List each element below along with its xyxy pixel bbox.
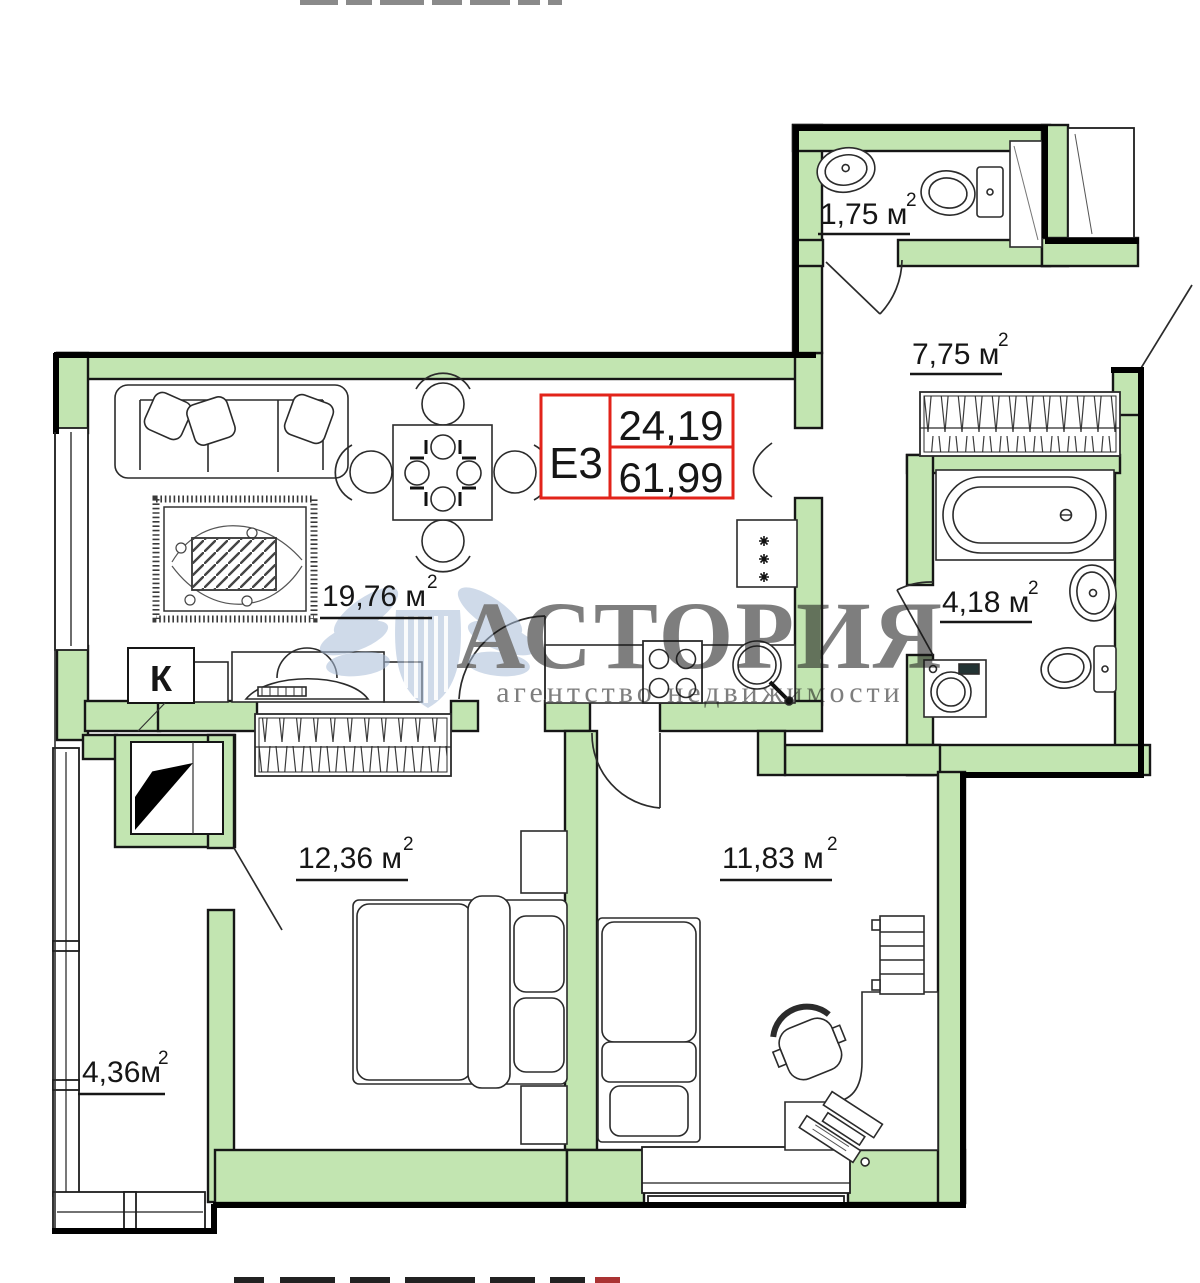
- bath-sink: [1066, 562, 1119, 624]
- watermark-subtitle: агентство недвижимости: [496, 676, 903, 709]
- entrance-door: [1138, 285, 1192, 373]
- balcony-left-window: [53, 748, 79, 1196]
- hallway-area-label: 7,75 м 2: [910, 330, 1009, 374]
- unit-room-area: 24,19: [618, 402, 723, 449]
- svg-text:11,83 м: 11,83 м: [722, 842, 824, 875]
- rug: [156, 499, 314, 619]
- shelf: [872, 916, 924, 994]
- single-bed: [598, 918, 700, 1142]
- cropped-text-artifact-top: [300, 0, 562, 5]
- wc-door: [826, 260, 902, 314]
- balcony-bottom-window: [53, 1192, 205, 1230]
- unit-total-area: 61,99: [618, 454, 723, 501]
- svg-text:2: 2: [998, 330, 1009, 351]
- unit-code: Е3: [549, 439, 603, 488]
- floor-plan: АСТОРИЯ агентство недвижимости 1,75 м 2 …: [0, 0, 1200, 1283]
- bathtub: [936, 470, 1114, 560]
- bedroom2-area-label: 11,83 м 2: [720, 834, 838, 880]
- balcony-door: [234, 848, 282, 930]
- unit-badge: Е3 24,19 61,99: [541, 395, 733, 501]
- bathroom-area-label: 4,18 м 2: [940, 578, 1039, 622]
- coffee-table: [192, 538, 276, 590]
- floor-plan-page: АСТОРИЯ агентство недвижимости 1,75 м 2 …: [0, 0, 1200, 1283]
- cropped-text-artifact-bottom: [234, 1277, 620, 1283]
- svg-text:2: 2: [158, 1048, 169, 1069]
- wc-area-label: 1,75 м 2: [818, 190, 917, 234]
- svg-text:2: 2: [403, 834, 414, 855]
- wc-toilet: [918, 167, 1003, 219]
- dining-set: [335, 373, 550, 572]
- balcony-area-label: 4,36м 2: [78, 1048, 169, 1094]
- svg-text:7,75 м: 7,75 м: [912, 338, 999, 371]
- svg-text:2: 2: [1028, 578, 1039, 599]
- wc-niche: [1068, 128, 1134, 238]
- watermark-title: АСТОРИЯ: [456, 582, 944, 689]
- shaft-label: К: [150, 658, 173, 699]
- nightstand: [521, 1086, 567, 1144]
- svg-text:2: 2: [427, 572, 438, 593]
- tv-stand: [188, 648, 422, 702]
- office-chair: [761, 996, 854, 1088]
- living-area-label: 19,76 м 2: [320, 572, 438, 618]
- wc-door-panel: [1010, 141, 1042, 247]
- living-hall-opening: [754, 443, 773, 497]
- svg-text:2: 2: [827, 834, 838, 855]
- sofa: [115, 385, 348, 478]
- bedroom1-wardrobe: [255, 714, 451, 776]
- svg-text:4,18 м: 4,18 м: [942, 586, 1029, 619]
- nightstand: [521, 831, 567, 893]
- svg-text:2: 2: [906, 190, 917, 211]
- bedroom2-door: [592, 733, 660, 808]
- svg-text:4,36м: 4,36м: [82, 1056, 161, 1089]
- svg-text:1,75 м: 1,75 м: [820, 198, 907, 231]
- bedroom1-area-label: 12,36 м 2: [296, 834, 414, 880]
- hallway-wardrobe: [920, 392, 1120, 456]
- double-bed: [353, 896, 567, 1088]
- bath-toilet: [1038, 644, 1116, 692]
- fridge: [737, 520, 797, 587]
- living-window: [55, 428, 88, 650]
- bedroom2-window: [642, 1147, 850, 1205]
- vent-shaft: [131, 742, 223, 834]
- svg-text:12,36 м: 12,36 м: [298, 842, 402, 875]
- svg-text:19,76 м: 19,76 м: [322, 580, 426, 613]
